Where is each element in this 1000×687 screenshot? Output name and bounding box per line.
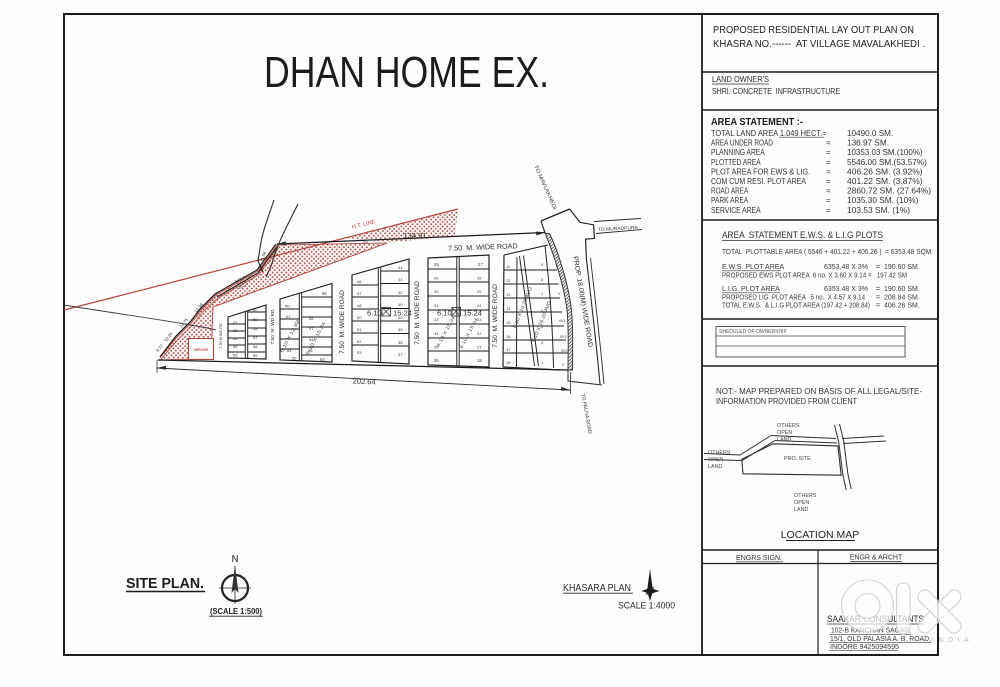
svg-text:6.10: 6.10 (367, 309, 382, 318)
svg-text:9: 9 (562, 363, 564, 367)
svg-text:SITE PLAN.: SITE PLAN. (126, 575, 204, 592)
svg-text:SHEDULED OF OWNERSHIP: SHEDULED OF OWNERSHIP (719, 329, 787, 335)
svg-text:LAND OWNER'S: LAND OWNER'S (712, 74, 769, 84)
svg-text:25: 25 (477, 289, 482, 294)
svg-text:INDIA: INDIA (932, 637, 973, 644)
svg-text:PROPOSED LIG PLOT AREA 5 no: PROPOSED LIG PLOT AREA 5 no. X 4.57 X 9.… (722, 295, 865, 302)
svg-text:36: 36 (434, 358, 439, 363)
svg-text:134.91: 134.91 (404, 231, 427, 240)
svg-text:65: 65 (233, 344, 238, 349)
svg-text:58: 58 (253, 326, 258, 331)
svg-text:SHRI. CONCRETE INFRASTRUCTURE: SHRI. CONCRETE INFRASTRUCTURE (712, 86, 840, 96)
svg-text:27: 27 (478, 262, 483, 267)
svg-text:OPEN: OPEN (777, 430, 792, 436)
svg-text:KHASRA NO.------ AT VILLAGE M: KHASRA NO.------ AT VILLAGE MAVALAKHEDI … (713, 39, 925, 50)
svg-text:INFORMATION PROVIDED FROM CLIE: INFORMATION PROVIDED FROM CLIENT (716, 397, 857, 406)
svg-text:L.I.G. PLOT AREA: L.I.G. PLOT AREA (722, 286, 780, 293)
svg-text:136.97 SM.: 136.97 SM. (847, 139, 889, 148)
svg-text:62: 62 (233, 320, 238, 325)
svg-text:=: = (826, 187, 831, 196)
svg-text:PROPOSED EWS PLOT AREA 6 no.: PROPOSED EWS PLOT AREA 6 no. X 3.60 X 9.… (722, 273, 907, 280)
svg-text:DHAN HOME EX.: DHAN HOME EX. (264, 48, 549, 97)
svg-text:= 190.60 SM.: = 190.60 SM. (876, 264, 920, 271)
svg-text:PLOTTED AREA: PLOTTED AREA (711, 158, 761, 167)
svg-text:LAND: LAND (708, 464, 722, 470)
svg-text:7.50 M. WIDE ROAD: 7.50 M. WIDE ROAD (492, 284, 499, 348)
svg-text:5546.00 SM.(53.57%): 5546.00 SM.(53.57%) (847, 158, 927, 167)
svg-text:57: 57 (253, 335, 258, 340)
svg-text:OTHERS: OTHERS (708, 450, 731, 456)
svg-text:TOTAL PLOTTABLE AREA ( 5546 +: TOTAL PLOTTABLE AREA ( 5546 + 401.22 + 4… (722, 249, 933, 256)
svg-text:PLOT AREA FOR EWS & LIG.: PLOT AREA FOR EWS & LIG. (711, 167, 810, 176)
svg-text:N: N (231, 554, 238, 565)
svg-text:48: 48 (357, 303, 362, 308)
svg-text:61: 61 (286, 314, 291, 319)
svg-text:202.64: 202.64 (352, 376, 375, 386)
svg-text:6: 6 (558, 292, 560, 296)
svg-text:ENGRS SIGN.: ENGRS SIGN. (736, 555, 782, 562)
svg-text:19: 19 (477, 358, 482, 363)
svg-text:COM CUM RESI. PLOT AREA: COM CUM RESI. PLOT AREA (711, 177, 807, 186)
svg-text:AREA STATEMENT E.W.S. & L.I.G: AREA STATEMENT E.W.S. & L.I.G PLOTS (722, 230, 883, 240)
svg-text:10490.0 SM.: 10490.0 SM. (847, 129, 893, 138)
svg-text:103.53 SM. (1%): 103.53 SM. (1%) (847, 206, 910, 215)
svg-text:NOT:- MAP PREPARED ON BASIS OF: NOT:- MAP PREPARED ON BASIS OF ALL LEGAL… (716, 387, 922, 396)
svg-text:38: 38 (398, 340, 403, 345)
svg-text:63: 63 (233, 328, 238, 333)
svg-text:18: 18 (506, 360, 511, 365)
svg-text:55: 55 (292, 356, 297, 361)
svg-text:= 190.60 SM.: = 190.60 SM. (876, 286, 920, 293)
svg-text:= 406.26 SM.: = 406.26 SM. (876, 303, 920, 310)
svg-text:(SCALE 1:500): (SCALE 1:500) (210, 607, 262, 616)
svg-text:26: 26 (477, 276, 482, 281)
svg-text:=: = (826, 167, 831, 176)
svg-text:52: 52 (357, 339, 362, 344)
svg-text:=: = (826, 177, 831, 186)
svg-text:16: 16 (506, 334, 511, 339)
svg-text:39-2: 39-2 (561, 349, 568, 353)
svg-text:57: 57 (309, 326, 314, 331)
svg-text:37: 37 (398, 352, 403, 357)
svg-text:66: 66 (233, 353, 238, 358)
svg-text:58: 58 (309, 316, 314, 321)
svg-text:54: 54 (320, 357, 325, 362)
svg-text:7.50 M. WIDE ROAD: 7.50 M. WIDE ROAD (414, 281, 421, 345)
svg-text:44: 44 (398, 265, 403, 270)
svg-text:401.22 SM. (3.87%): 401.22 SM. (3.87%) (847, 177, 923, 186)
svg-text:=: = (826, 139, 831, 148)
svg-text:SCALE 1:4000: SCALE 1:4000 (618, 601, 675, 611)
svg-text:7.50 M. WIDE ROAD: 7.50 M. WIDE ROAD (339, 290, 346, 354)
svg-text:PLANNING AREA: PLANNING AREA (711, 148, 765, 157)
svg-text:PARK AREA: PARK AREA (711, 196, 749, 205)
svg-text:=: = (826, 206, 831, 215)
svg-text:45: 45 (363, 239, 368, 244)
svg-text:22: 22 (477, 331, 482, 336)
svg-text:=: = (826, 148, 831, 157)
svg-text:10353.03 SM.(100%): 10353.03 SM.(100%) (847, 148, 923, 157)
svg-text:53: 53 (357, 350, 362, 355)
svg-text:60: 60 (253, 308, 258, 313)
svg-text:43: 43 (398, 277, 403, 282)
svg-text:SERVICE AREA: SERVICE AREA (711, 206, 761, 215)
svg-text:6353.48 X 3%: 6353.48 X 3% (824, 286, 868, 293)
svg-text:PRO. SITE: PRO. SITE (784, 456, 811, 462)
svg-text:TOTAL LAND AREA 1.049 HECT.=: TOTAL LAND AREA 1.049 HECT.= (711, 129, 827, 138)
svg-text:LOCATION MAP: LOCATION MAP (781, 529, 860, 541)
svg-text:47: 47 (357, 291, 362, 296)
svg-text:14: 14 (506, 306, 511, 311)
svg-text:OTHERS: OTHERS (777, 423, 800, 429)
svg-text:24: 24 (477, 303, 482, 308)
svg-text:46: 46 (357, 279, 362, 284)
svg-text:51: 51 (357, 327, 362, 332)
svg-text:56: 56 (322, 291, 327, 296)
svg-text:= 208.84 SM.: = 208.84 SM. (876, 295, 920, 302)
svg-text:7.30 M WD RD: 7.30 M WD RD (219, 323, 223, 349)
svg-text:2860.72 SM. (27.64%): 2860.72 SM. (27.64%) (847, 187, 931, 196)
svg-text:59: 59 (253, 317, 258, 322)
svg-text:15: 15 (506, 320, 511, 325)
svg-text:13: 13 (506, 292, 511, 297)
svg-text:OPEN: OPEN (708, 457, 723, 463)
svg-text:KHASARA PLAN: KHASARA PLAN (563, 583, 631, 594)
svg-text:15.24: 15.24 (393, 309, 412, 318)
svg-text:E.W.S. PLOT AREA: E.W.S. PLOT AREA (722, 264, 784, 271)
svg-text:6353.48 X 3%: 6353.48 X 3% (824, 264, 868, 271)
svg-text:64: 64 (287, 348, 292, 353)
svg-text:AREA STATEMENT :-: AREA STATEMENT :- (711, 117, 803, 128)
svg-text:40: 40 (398, 302, 403, 307)
svg-text:17: 17 (506, 347, 511, 352)
svg-text:TOTAL E.W.S. & L.I.G PLOT ARE: TOTAL E.W.S. & L.I.G PLOT AREA (197.42 +… (722, 303, 870, 310)
svg-text:50: 50 (357, 315, 362, 320)
svg-text:SERVICE: SERVICE (194, 348, 210, 352)
svg-text:ROAD AREA: ROAD AREA (711, 187, 749, 196)
svg-text:15.24: 15.24 (463, 309, 482, 318)
svg-text:30: 30 (434, 289, 439, 294)
svg-text:1035.30 SM. (10%): 1035.30 SM. (10%) (847, 196, 919, 205)
svg-text:42: 42 (398, 290, 403, 295)
svg-text:29: 29 (434, 276, 439, 281)
svg-text:39: 39 (398, 327, 403, 332)
svg-text:56: 56 (253, 344, 258, 349)
svg-text:=: = (826, 196, 831, 205)
svg-text:34: 34 (434, 331, 439, 336)
svg-text:33: 33 (434, 317, 439, 322)
svg-text:ENGR & ARCHT: ENGR & ARCHT (850, 555, 903, 562)
svg-text:406.26 SM. (3.92%): 406.26 SM. (3.92%) (847, 167, 923, 176)
svg-text:66-4: 66-4 (559, 319, 566, 323)
svg-text:55: 55 (253, 353, 258, 358)
svg-text:21: 21 (477, 345, 482, 350)
svg-text:26: 26 (434, 262, 439, 267)
svg-text:OPEN: OPEN (794, 500, 809, 506)
svg-text:12: 12 (506, 278, 511, 283)
svg-text:6.10: 6.10 (437, 309, 452, 318)
svg-text:PROPOSED RESIDENTIAL LAY OUT P: PROPOSED RESIDENTIAL LAY OUT PLAN ON (713, 25, 914, 36)
svg-text:64: 64 (233, 336, 238, 341)
svg-text:LAND: LAND (777, 437, 791, 443)
svg-text:31: 31 (434, 303, 439, 308)
svg-text:=: = (826, 158, 831, 167)
svg-text:50: 50 (285, 304, 290, 309)
svg-text:OTHERS: OTHERS (794, 493, 817, 499)
svg-text:7.50 M. WD RD: 7.50 M. WD RD (270, 309, 276, 344)
svg-text:INDORE 9425094595: INDORE 9425094595 (830, 642, 899, 651)
svg-text:LAND: LAND (794, 507, 808, 513)
svg-text:69-3: 69-3 (560, 335, 567, 339)
svg-text:AREA UNDER ROAD: AREA UNDER ROAD (711, 139, 773, 148)
